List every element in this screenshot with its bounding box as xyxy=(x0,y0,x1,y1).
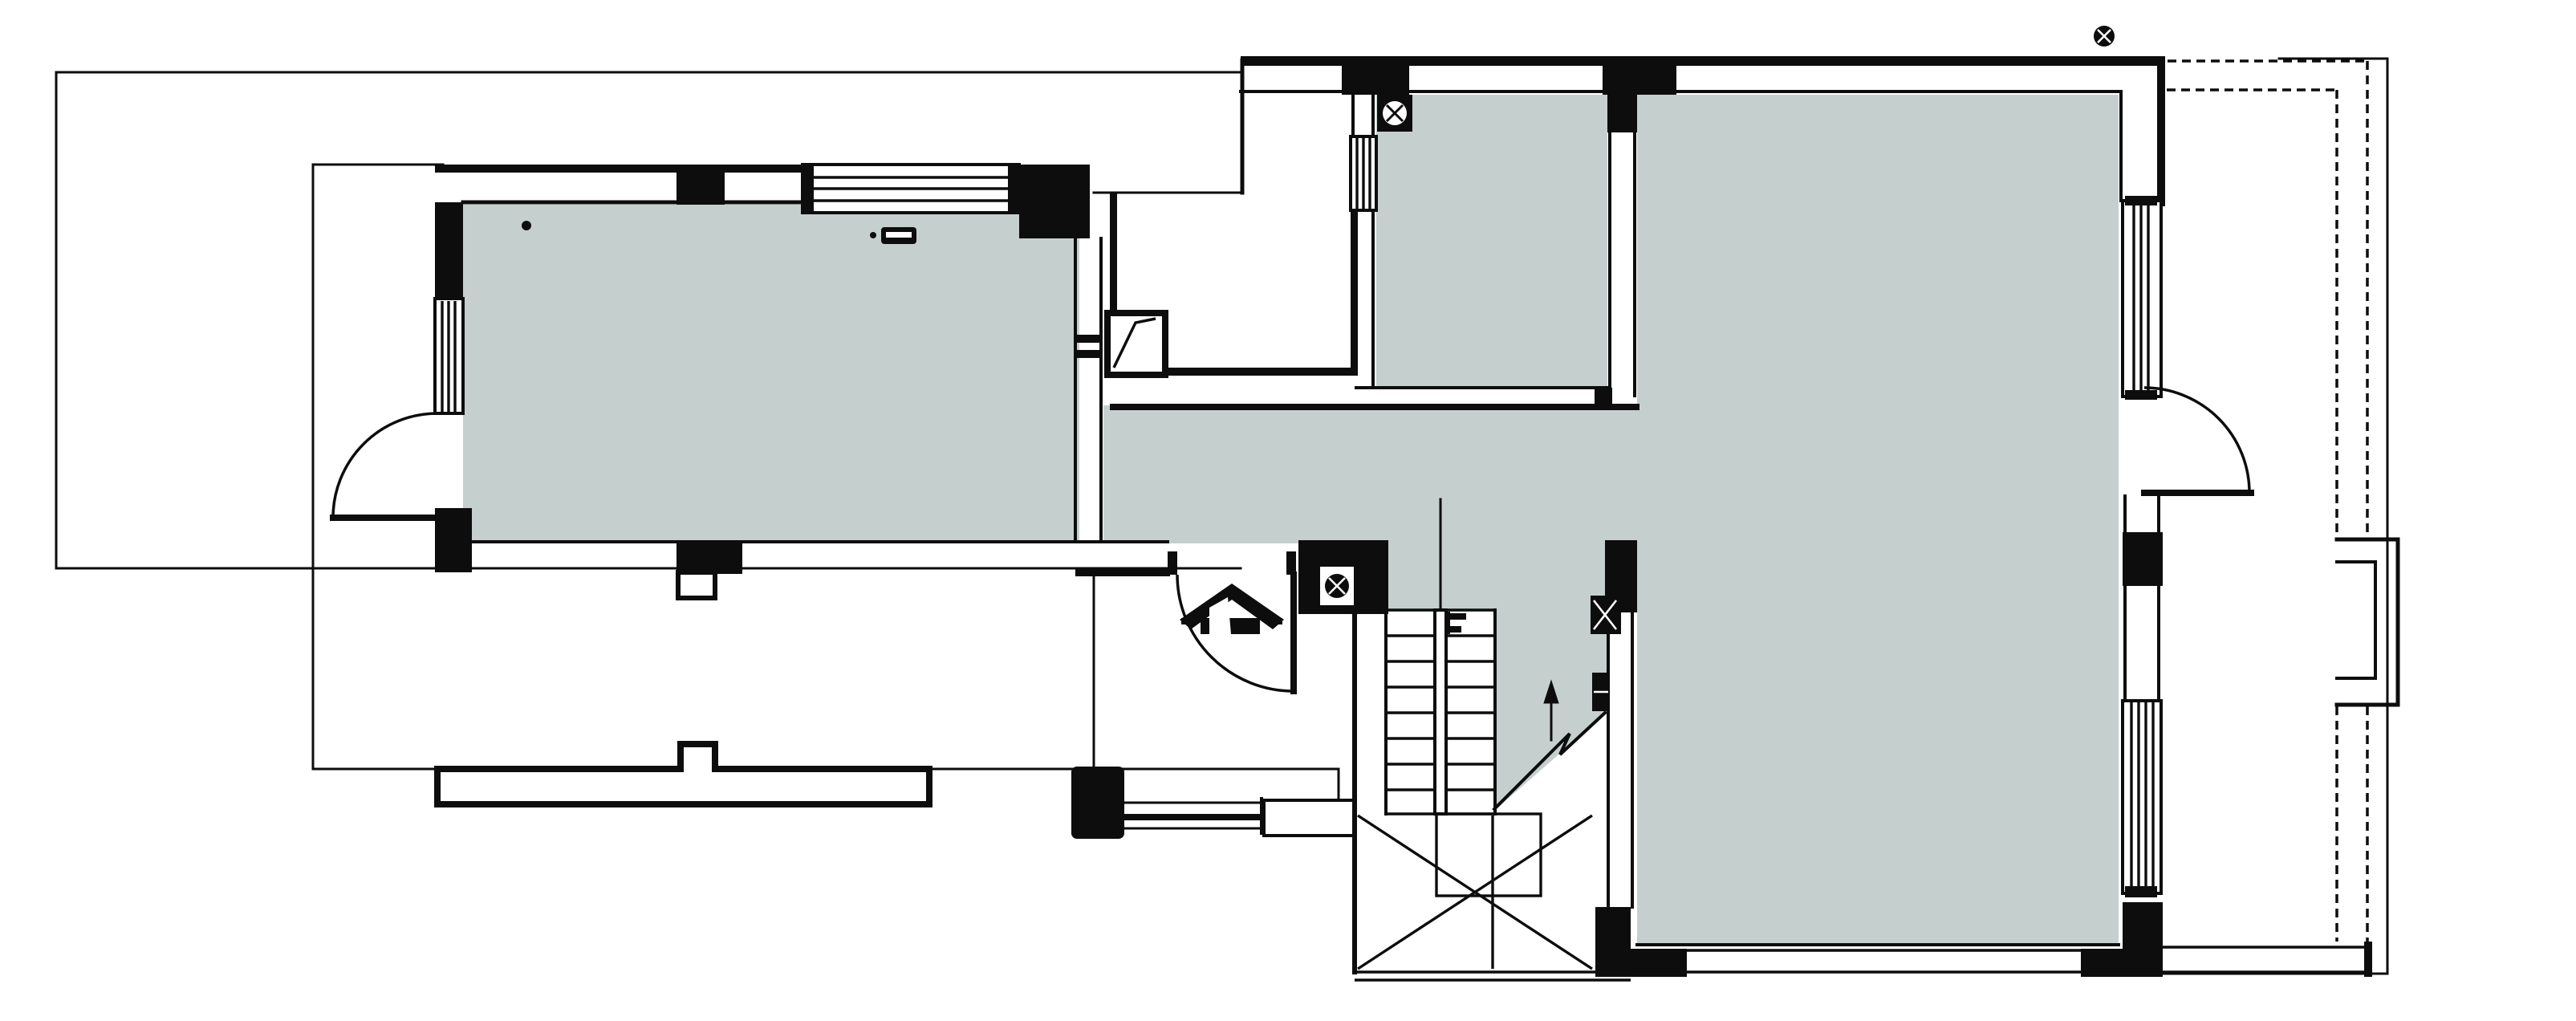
room-west-fill xyxy=(463,205,1079,542)
small-dot-icon xyxy=(522,221,531,230)
hall-north-wall xyxy=(1110,404,1639,410)
window-south-projecting xyxy=(678,572,715,598)
south-wall-slab-west xyxy=(1629,949,1687,977)
porch-pier-block xyxy=(1071,767,1124,839)
stair-east-column-bottom xyxy=(1595,907,1631,977)
window-east-upper xyxy=(2123,196,2161,400)
west-wall-upper xyxy=(435,202,463,299)
wall-vent-bar-2 xyxy=(1075,350,1101,358)
window-small-room xyxy=(1351,136,1376,210)
room-north-small-fill xyxy=(1376,95,1607,389)
porch-steps xyxy=(1124,799,1262,833)
room-east-large-fill xyxy=(1637,95,2119,945)
wall-vent-bar-1 xyxy=(1075,335,1101,343)
stair-center-rail xyxy=(1435,610,1446,814)
shaft-box xyxy=(1107,313,1165,375)
stair-wall-fixture-lower xyxy=(1592,673,1610,711)
porch-wall-box xyxy=(1264,800,1355,836)
south-wall-slab-east xyxy=(2081,949,2163,977)
window-east-lower xyxy=(2123,701,2161,897)
entry-door-jamb-left xyxy=(1168,551,1177,575)
entry-door-jamb-right xyxy=(1286,551,1296,575)
circled-cross-drain-icon xyxy=(1377,95,1412,132)
hall-south-wall xyxy=(1075,568,1170,576)
south-cavity-endpost xyxy=(2364,942,2372,977)
floor-plan-canvas xyxy=(0,0,2576,1021)
circled-cross-drain-icon xyxy=(1320,567,1354,605)
hallway-fill xyxy=(1103,405,1639,543)
target-circle-icon xyxy=(2094,26,2115,47)
window-north-striped xyxy=(802,165,1019,213)
south-wall-block xyxy=(677,540,742,574)
northeast-corner-wall xyxy=(2157,59,2165,206)
north-wall-column-2 xyxy=(1603,56,1676,95)
north-wall-column-1 xyxy=(1342,56,1409,95)
patio-south-wall xyxy=(1164,368,1358,376)
east-wall-column-mid xyxy=(2123,532,2163,586)
window-west-wall xyxy=(435,299,463,413)
west-room-top-column xyxy=(677,165,725,205)
stair-wall-fixture-upper xyxy=(1591,596,1621,634)
small-room-wall-header xyxy=(1607,90,1637,132)
floor-plan-drawing xyxy=(0,0,2576,1021)
